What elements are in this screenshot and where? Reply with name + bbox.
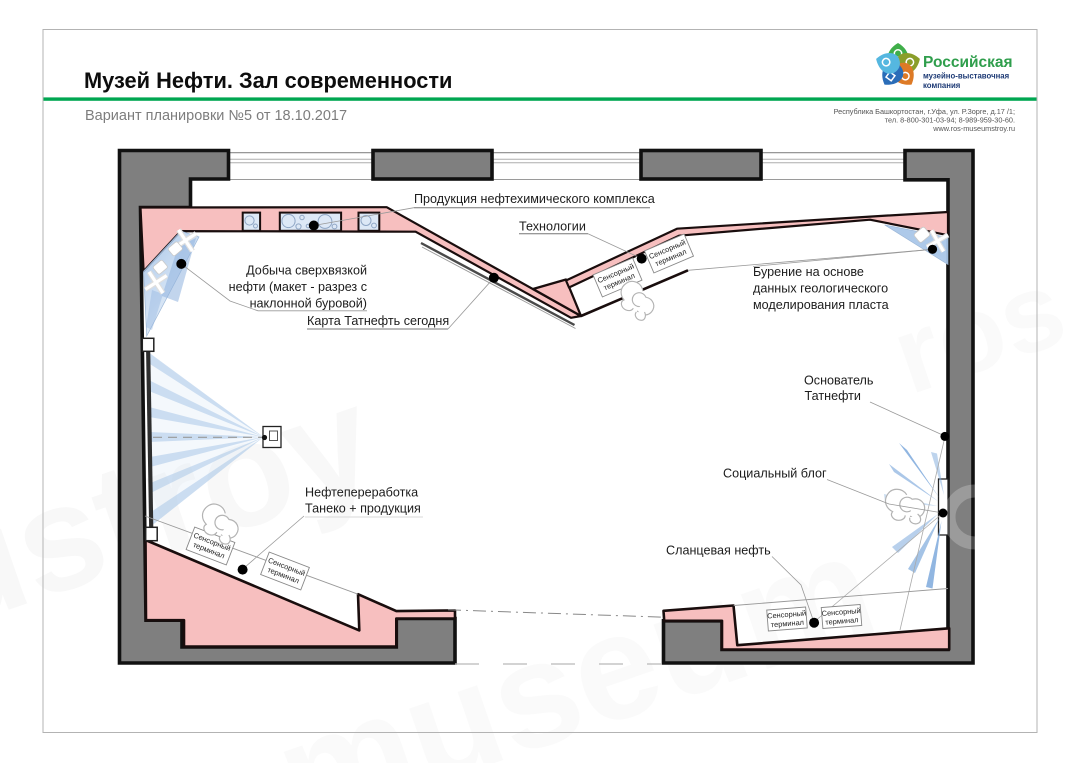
svg-text:www.ros-museumstroy.ru: www.ros-museumstroy.ru bbox=[932, 124, 1015, 133]
svg-text:Музей Нефти. Зал современности: Музей Нефти. Зал современности bbox=[84, 68, 452, 93]
svg-text:Продукция нефтехимического ком: Продукция нефтехимического комплекса bbox=[414, 192, 655, 206]
svg-text:Нефтепереработка: Нефтепереработка bbox=[305, 486, 418, 500]
svg-text:компания: компания bbox=[923, 81, 960, 90]
svg-text:музейно-выставочная: музейно-выставочная bbox=[923, 72, 1009, 81]
svg-text:Социальный блог: Социальный блог bbox=[723, 467, 827, 481]
svg-text:Вариант планировки №5 от 18.10: Вариант планировки №5 от 18.10.2017 bbox=[85, 108, 347, 124]
svg-text:нефти (макет - разрез с: нефти (макет - разрез с bbox=[229, 280, 367, 294]
svg-text:Российская: Российская bbox=[923, 54, 1013, 71]
svg-text:Карта Татнефть сегодня: Карта Татнефть сегодня bbox=[307, 314, 449, 328]
svg-text:данных геологического: данных геологического bbox=[753, 282, 888, 296]
svg-text:Танеко + продукция: Танеко + продукция bbox=[305, 502, 421, 516]
svg-text:Добыча сверхвязкой: Добыча сверхвязкой bbox=[246, 264, 367, 278]
svg-text:наклонной буровой): наклонной буровой) bbox=[250, 297, 367, 311]
svg-text:моделирования пласта: моделирования пласта bbox=[753, 298, 889, 312]
svg-text:Основатель: Основатель bbox=[804, 374, 874, 388]
svg-text:Татнефти: Татнефти bbox=[805, 389, 861, 403]
svg-text:Бурение на основе: Бурение на основе bbox=[753, 265, 864, 279]
svg-text:Технологии: Технологии bbox=[519, 220, 586, 234]
svg-text:Сланцевая нефть: Сланцевая нефть bbox=[666, 544, 771, 558]
svg-text:ros: ros bbox=[878, 246, 1080, 418]
